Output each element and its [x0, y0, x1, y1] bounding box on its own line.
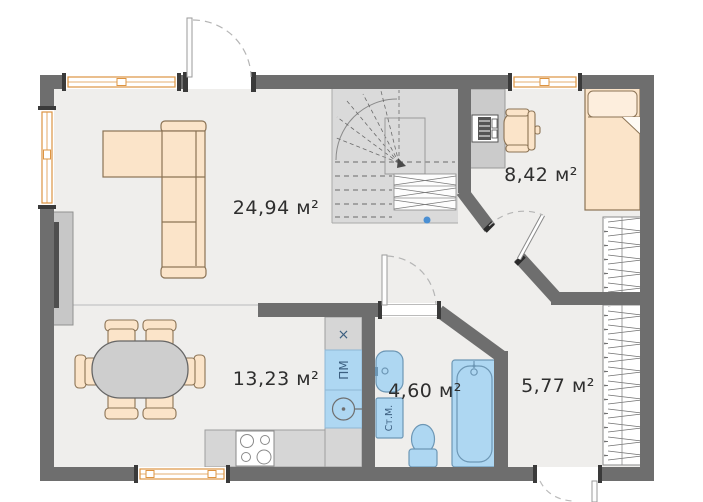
- room-label-bathroom: 4,60 м²: [388, 380, 462, 402]
- desk-chair: [504, 109, 540, 152]
- computer-icon: [472, 115, 498, 142]
- wall-right: [640, 75, 654, 481]
- bathtub: [452, 360, 497, 467]
- tv-icon: [54, 222, 59, 308]
- hallway-wardrobe: [603, 305, 641, 465]
- floor-plan-drawing: × ПМ Ст.М.: [0, 0, 703, 502]
- desk: [470, 89, 505, 168]
- door-leaf: [382, 255, 387, 305]
- room-label-living: 24,94 м²: [233, 197, 319, 219]
- pillow: [588, 91, 637, 117]
- stair-lower-flight: [394, 174, 456, 210]
- toilet: [409, 425, 437, 468]
- room-label-bedroom: 8,42 м²: [504, 164, 578, 186]
- room-label-hallway: 5,77 м²: [521, 375, 595, 397]
- door-entrance: [533, 465, 602, 502]
- wall-kitchen-bathroom: [362, 303, 375, 467]
- dishwasher-label: ПМ: [337, 360, 351, 379]
- stair-marker-dot: [424, 217, 431, 224]
- dining-table: [92, 341, 188, 398]
- hob-symbol: ×: [338, 327, 350, 343]
- wall-bedroom-bottom: [551, 292, 640, 305]
- wall-bathroom-right: [494, 351, 508, 467]
- door-swing-arc: [193, 20, 251, 77]
- bedroom-wardrobe: [603, 217, 641, 293]
- window-kitchen: [134, 465, 230, 483]
- door-leaf: [187, 18, 192, 77]
- floor-plan: × ПМ Ст.М.: [0, 0, 703, 502]
- washing-machine-label: Ст.М.: [384, 405, 395, 431]
- bed: [585, 88, 640, 210]
- window-bedroom: [508, 73, 582, 91]
- window-living-left: [38, 106, 56, 209]
- room-label-kitchen: 13,23 м²: [233, 368, 319, 390]
- door-living-top: [183, 18, 256, 92]
- staircase: [332, 89, 458, 224]
- stove: [236, 431, 274, 466]
- wall-bedroom-left: [458, 89, 471, 193]
- door-swing-arc: [540, 481, 572, 501]
- door-leaf: [592, 481, 597, 502]
- window-living-top: [62, 73, 181, 91]
